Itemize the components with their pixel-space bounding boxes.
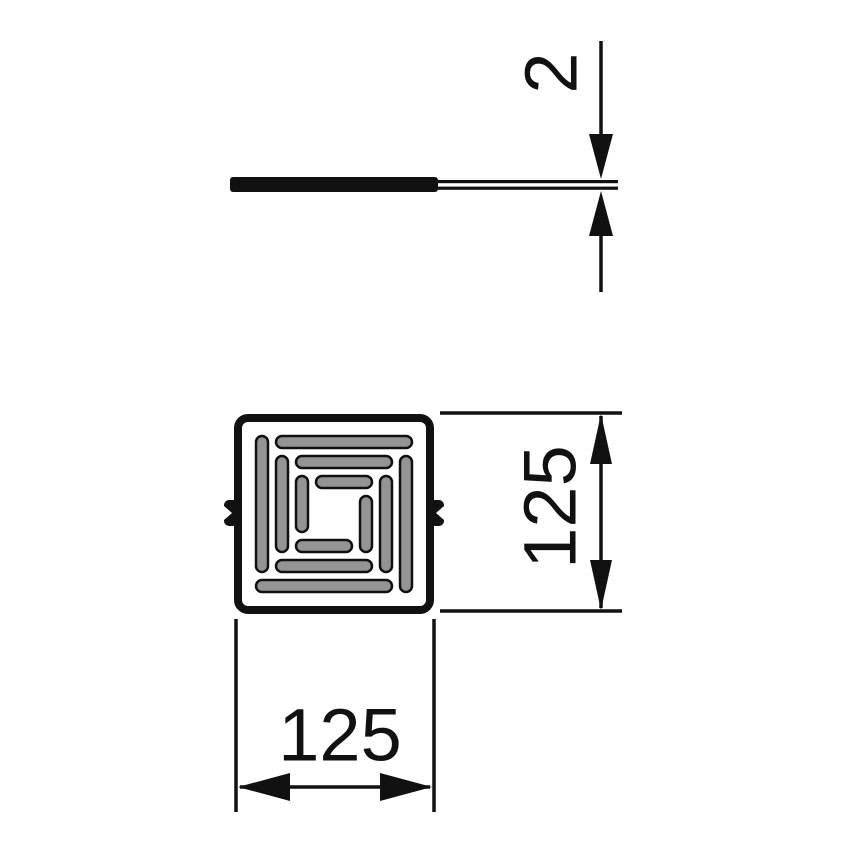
arrowhead-left-icon: [238, 773, 290, 801]
arrowhead-up-icon: [589, 191, 613, 236]
grate-slot: [256, 436, 268, 572]
arrowhead-right-icon: [380, 773, 432, 801]
height-dimension: 125: [440, 413, 622, 611]
thickness-label: 2: [510, 52, 593, 93]
grate-slot: [256, 580, 392, 592]
grate-slot: [360, 496, 372, 552]
arrowhead-down-icon: [589, 134, 613, 179]
drawing-canvas: 2 125 125: [0, 0, 850, 850]
side-view: [230, 177, 618, 192]
grate-slot: [296, 456, 392, 468]
grate-slot: [316, 476, 372, 488]
profile-top-edge-line: [438, 180, 618, 183]
profile-solid-section: [230, 177, 438, 192]
grate-slot: [296, 540, 352, 552]
arrowhead-down-icon: [590, 560, 612, 610]
grate-slots: [256, 436, 412, 592]
grate-slot: [380, 476, 392, 572]
width-dimension: 125: [236, 619, 434, 812]
width-label: 125: [278, 694, 401, 777]
thickness-dimension: 2: [510, 41, 614, 292]
grate-slot: [276, 436, 412, 448]
grate-slot: [296, 476, 308, 532]
height-label: 125: [509, 445, 592, 568]
profile-bottom-edge-line: [438, 187, 618, 190]
grate-slot: [400, 456, 412, 592]
technical-drawing: 2 125 125: [0, 0, 850, 850]
grate-slot: [276, 456, 288, 552]
arrowhead-up-icon: [590, 414, 612, 464]
grate-slot: [276, 560, 372, 572]
plan-view: [224, 418, 444, 610]
